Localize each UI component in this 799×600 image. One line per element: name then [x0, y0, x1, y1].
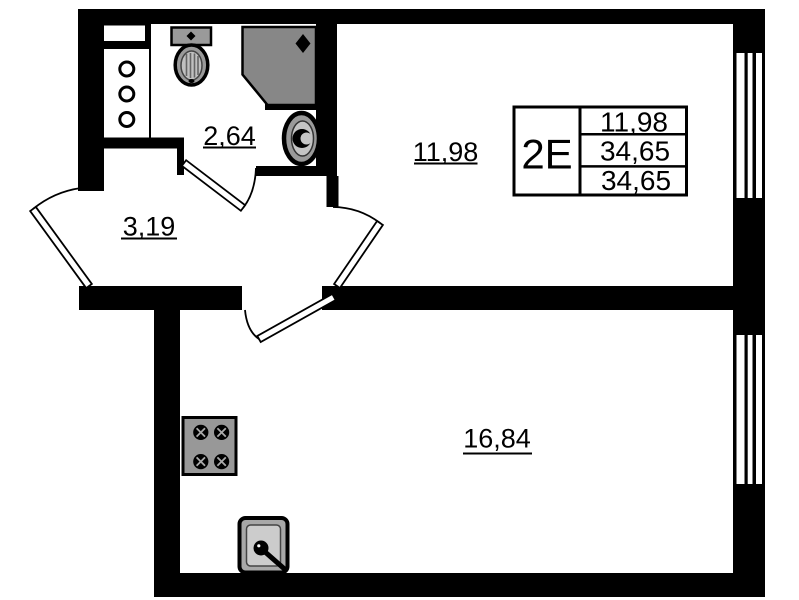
svg-text:3,19: 3,19 — [123, 212, 176, 242]
svg-text:2E: 2E — [521, 131, 572, 178]
svg-text:11,98: 11,98 — [600, 107, 668, 138]
svg-text:34,65: 34,65 — [601, 165, 671, 196]
svg-text:34,65: 34,65 — [600, 136, 670, 167]
svg-text:16,84: 16,84 — [463, 424, 531, 454]
